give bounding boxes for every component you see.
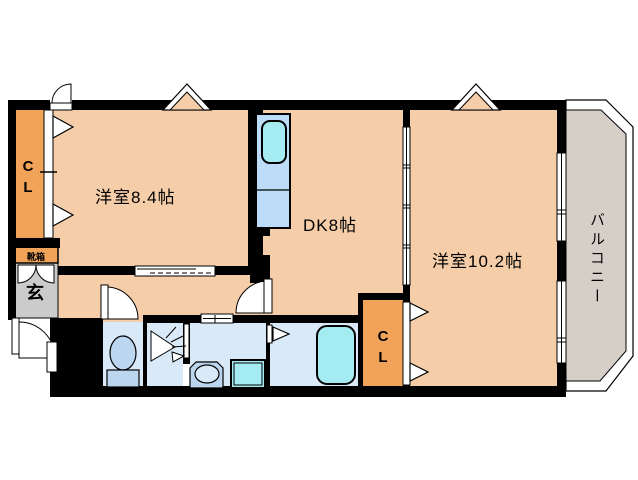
vanity-sink-icon	[190, 362, 223, 388]
wall-room1-hall-a	[58, 266, 138, 275]
balcony-label: バルコニー	[586, 212, 607, 307]
balcony-window-1	[557, 153, 566, 241]
toilet-icon	[107, 336, 139, 387]
dining-kitchen-label: DK8帖	[303, 211, 357, 236]
wall-dk-room2-b	[403, 285, 410, 302]
floorplan-drawing	[0, 0, 638, 480]
laundry-door	[184, 324, 189, 358]
top-left-door	[50, 84, 72, 110]
balcony-window-2	[557, 281, 566, 363]
bay-window-2	[452, 84, 500, 110]
closet-top-label: CL	[22, 156, 34, 198]
laundry-pan-icon	[231, 360, 265, 388]
wall-left	[8, 100, 16, 320]
western-room-1-label: 洋室8.4帖	[95, 183, 176, 208]
wall-below-closet	[8, 238, 60, 248]
hall-washroom-sliding-door	[201, 314, 233, 323]
dk-room2-sliding-door	[403, 127, 410, 285]
wall-dk-room2-c	[403, 385, 410, 397]
wall-bottom	[50, 386, 566, 397]
closet-bottom-label: CL	[377, 326, 389, 368]
floorplan-image: 洋室8.4帖 DK8帖 洋室10.2帖 バルコニー CL CL 玄 靴箱	[0, 0, 638, 480]
wall-mass-bottom-left	[50, 318, 103, 397]
western-room-2-label: 洋室10.2帖	[432, 247, 523, 272]
wall-wet-top-a	[143, 315, 201, 323]
kitchen-sink-icon	[256, 114, 290, 228]
wall-closet-bottom-top	[358, 293, 410, 300]
shoe-box-label: 靴箱	[14, 250, 58, 263]
bay-window-1	[163, 84, 211, 110]
wall-wet-top-b	[233, 315, 363, 323]
wall-dk-room2-a	[403, 108, 410, 127]
room1-hall-sliding-door	[135, 266, 215, 276]
entrance-label: 玄	[26, 279, 44, 305]
wall-closet-bottom-left	[358, 293, 363, 387]
wall-toilet-laundry	[143, 322, 147, 386]
bathtub-icon	[317, 326, 355, 384]
